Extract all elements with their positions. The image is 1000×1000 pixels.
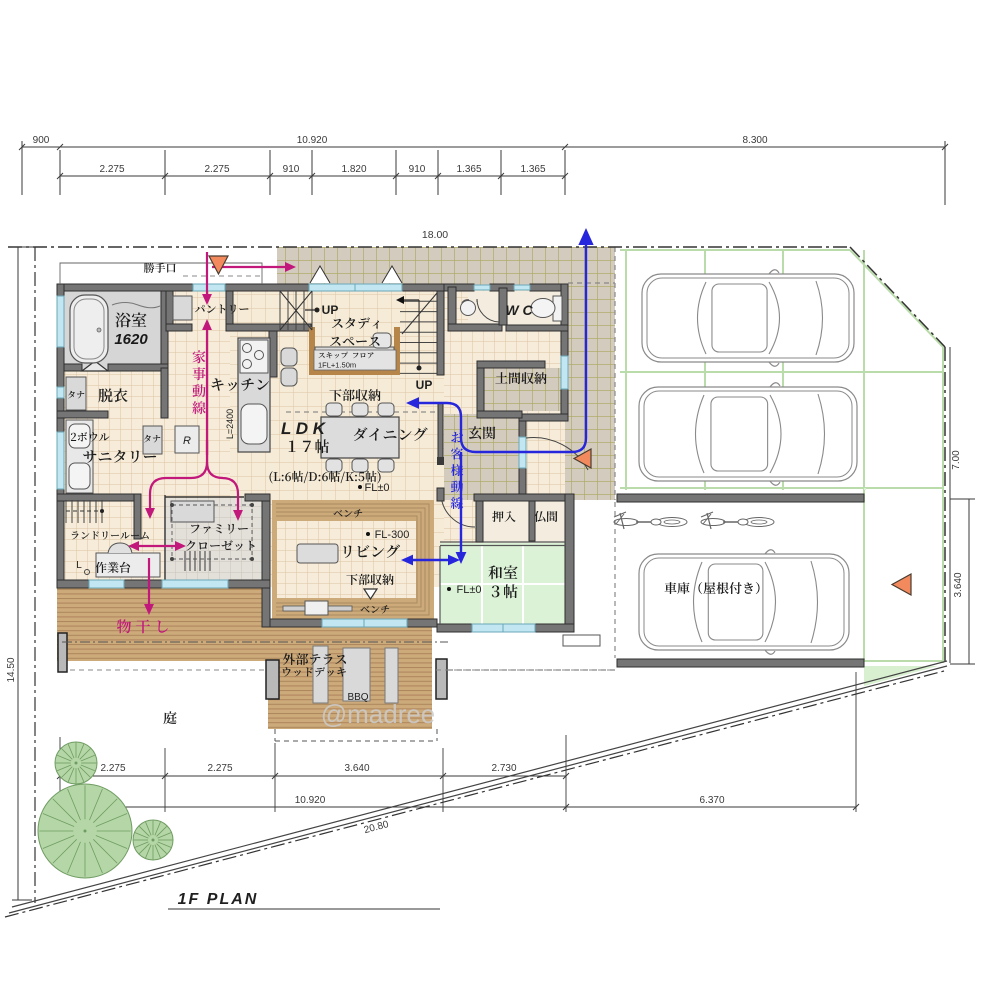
svg-text:3.640: 3.640 bbox=[344, 763, 369, 774]
svg-text:UP: UP bbox=[416, 378, 433, 392]
svg-text:1620: 1620 bbox=[114, 331, 148, 348]
svg-text:1.365: 1.365 bbox=[520, 164, 545, 175]
svg-text:6.370: 6.370 bbox=[699, 795, 724, 806]
svg-text:7.00: 7.00 bbox=[951, 450, 962, 470]
svg-text:910: 910 bbox=[409, 164, 426, 175]
svg-text:10.920: 10.920 bbox=[297, 135, 328, 146]
svg-text:FL-300: FL-300 bbox=[375, 529, 410, 541]
svg-text:L D K: L D K bbox=[281, 419, 327, 438]
svg-text:L: L bbox=[76, 560, 82, 571]
svg-text:14.50: 14.50 bbox=[6, 657, 17, 682]
svg-text:10.920: 10.920 bbox=[295, 795, 326, 806]
svg-text:18.00: 18.00 bbox=[422, 229, 448, 241]
svg-text:@madree: @madree bbox=[321, 699, 436, 729]
svg-text:R: R bbox=[183, 435, 191, 447]
svg-text:2.275: 2.275 bbox=[99, 164, 124, 175]
svg-text:2.730: 2.730 bbox=[491, 763, 516, 774]
svg-text:L=2400: L=2400 bbox=[225, 409, 235, 439]
svg-text:910: 910 bbox=[283, 164, 300, 175]
svg-text:W C: W C bbox=[505, 302, 533, 318]
svg-text:900: 900 bbox=[33, 135, 50, 146]
svg-text:2.275: 2.275 bbox=[100, 763, 125, 774]
svg-text:1.365: 1.365 bbox=[456, 164, 481, 175]
svg-text:1.820: 1.820 bbox=[341, 164, 366, 175]
svg-text:2.275: 2.275 bbox=[204, 164, 229, 175]
svg-text:2.275: 2.275 bbox=[207, 763, 232, 774]
svg-text:FL±0: FL±0 bbox=[365, 482, 390, 494]
svg-text:3.640: 3.640 bbox=[953, 572, 964, 597]
svg-text:1FL+1.50m: 1FL+1.50m bbox=[318, 361, 356, 370]
svg-text:FL±0: FL±0 bbox=[457, 584, 482, 596]
svg-text:8.300: 8.300 bbox=[742, 135, 767, 146]
svg-text:UP: UP bbox=[322, 303, 339, 317]
svg-text:1F PLAN: 1F PLAN bbox=[178, 891, 259, 908]
